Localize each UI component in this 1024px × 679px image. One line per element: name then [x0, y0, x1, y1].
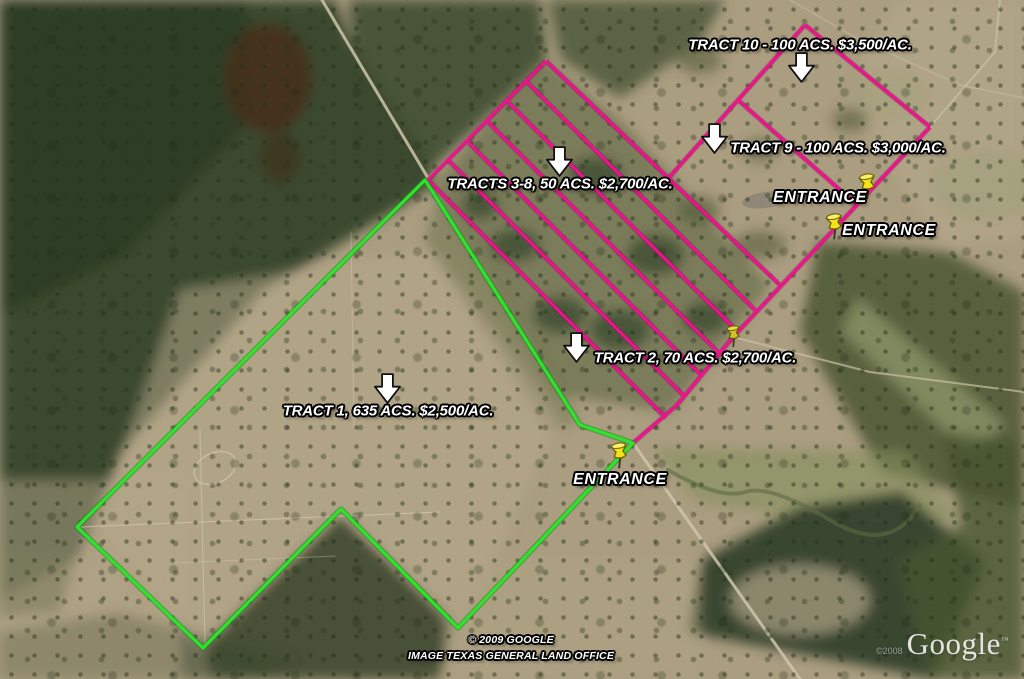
tract-9-label: TRACT 9 - 100 ACS. $3,000/AC. — [730, 140, 945, 157]
down-arrow-icon — [374, 373, 401, 404]
tract-1-pointer — [374, 373, 401, 404]
down-arrow-icon — [546, 146, 573, 177]
tracts-3-8-label: TRACTS 3-8, 50 ACS. $2,700/AC. — [447, 176, 672, 193]
satellite-map: TRACT 10 - 100 ACS. $3,500/AC. TRACT 9 -… — [0, 0, 1024, 679]
tract-9-pointer — [701, 123, 728, 154]
imagery-attribution: IMAGE TEXAS GENERAL LAND OFFICE — [408, 650, 614, 662]
tract-2-label: TRACT 2, 70 ACS. $2,700/AC. — [594, 350, 796, 367]
pushpin-icon — [722, 323, 746, 350]
tract-1-label: TRACT 1, 635 ACS. $2,500/AC. — [283, 403, 494, 420]
tracts-3-8-pointer — [546, 146, 573, 177]
tract-boundaries-overlay — [0, 0, 1024, 679]
tract-2-ne-edge — [428, 180, 666, 418]
tract-10-label: TRACT 10 - 100 ACS. $3,500/AC. — [688, 37, 912, 54]
copyright-attribution: © 2009 GOOGLE — [468, 634, 554, 646]
tract-2-pointer — [563, 332, 590, 363]
road-junction-pushpin[interactable] — [722, 323, 746, 350]
entrance-label-middle: ENTRANCE — [842, 222, 936, 240]
down-arrow-icon — [563, 332, 590, 363]
tract-10-pointer — [788, 52, 815, 83]
entrance-label-north: ENTRANCE — [773, 189, 867, 207]
down-arrow-icon — [788, 52, 815, 83]
down-arrow-icon — [701, 123, 728, 154]
entrance-pushpin-south[interactable] — [606, 439, 634, 470]
pushpin-icon — [606, 439, 634, 470]
entrance-label-south: ENTRANCE — [573, 471, 667, 489]
